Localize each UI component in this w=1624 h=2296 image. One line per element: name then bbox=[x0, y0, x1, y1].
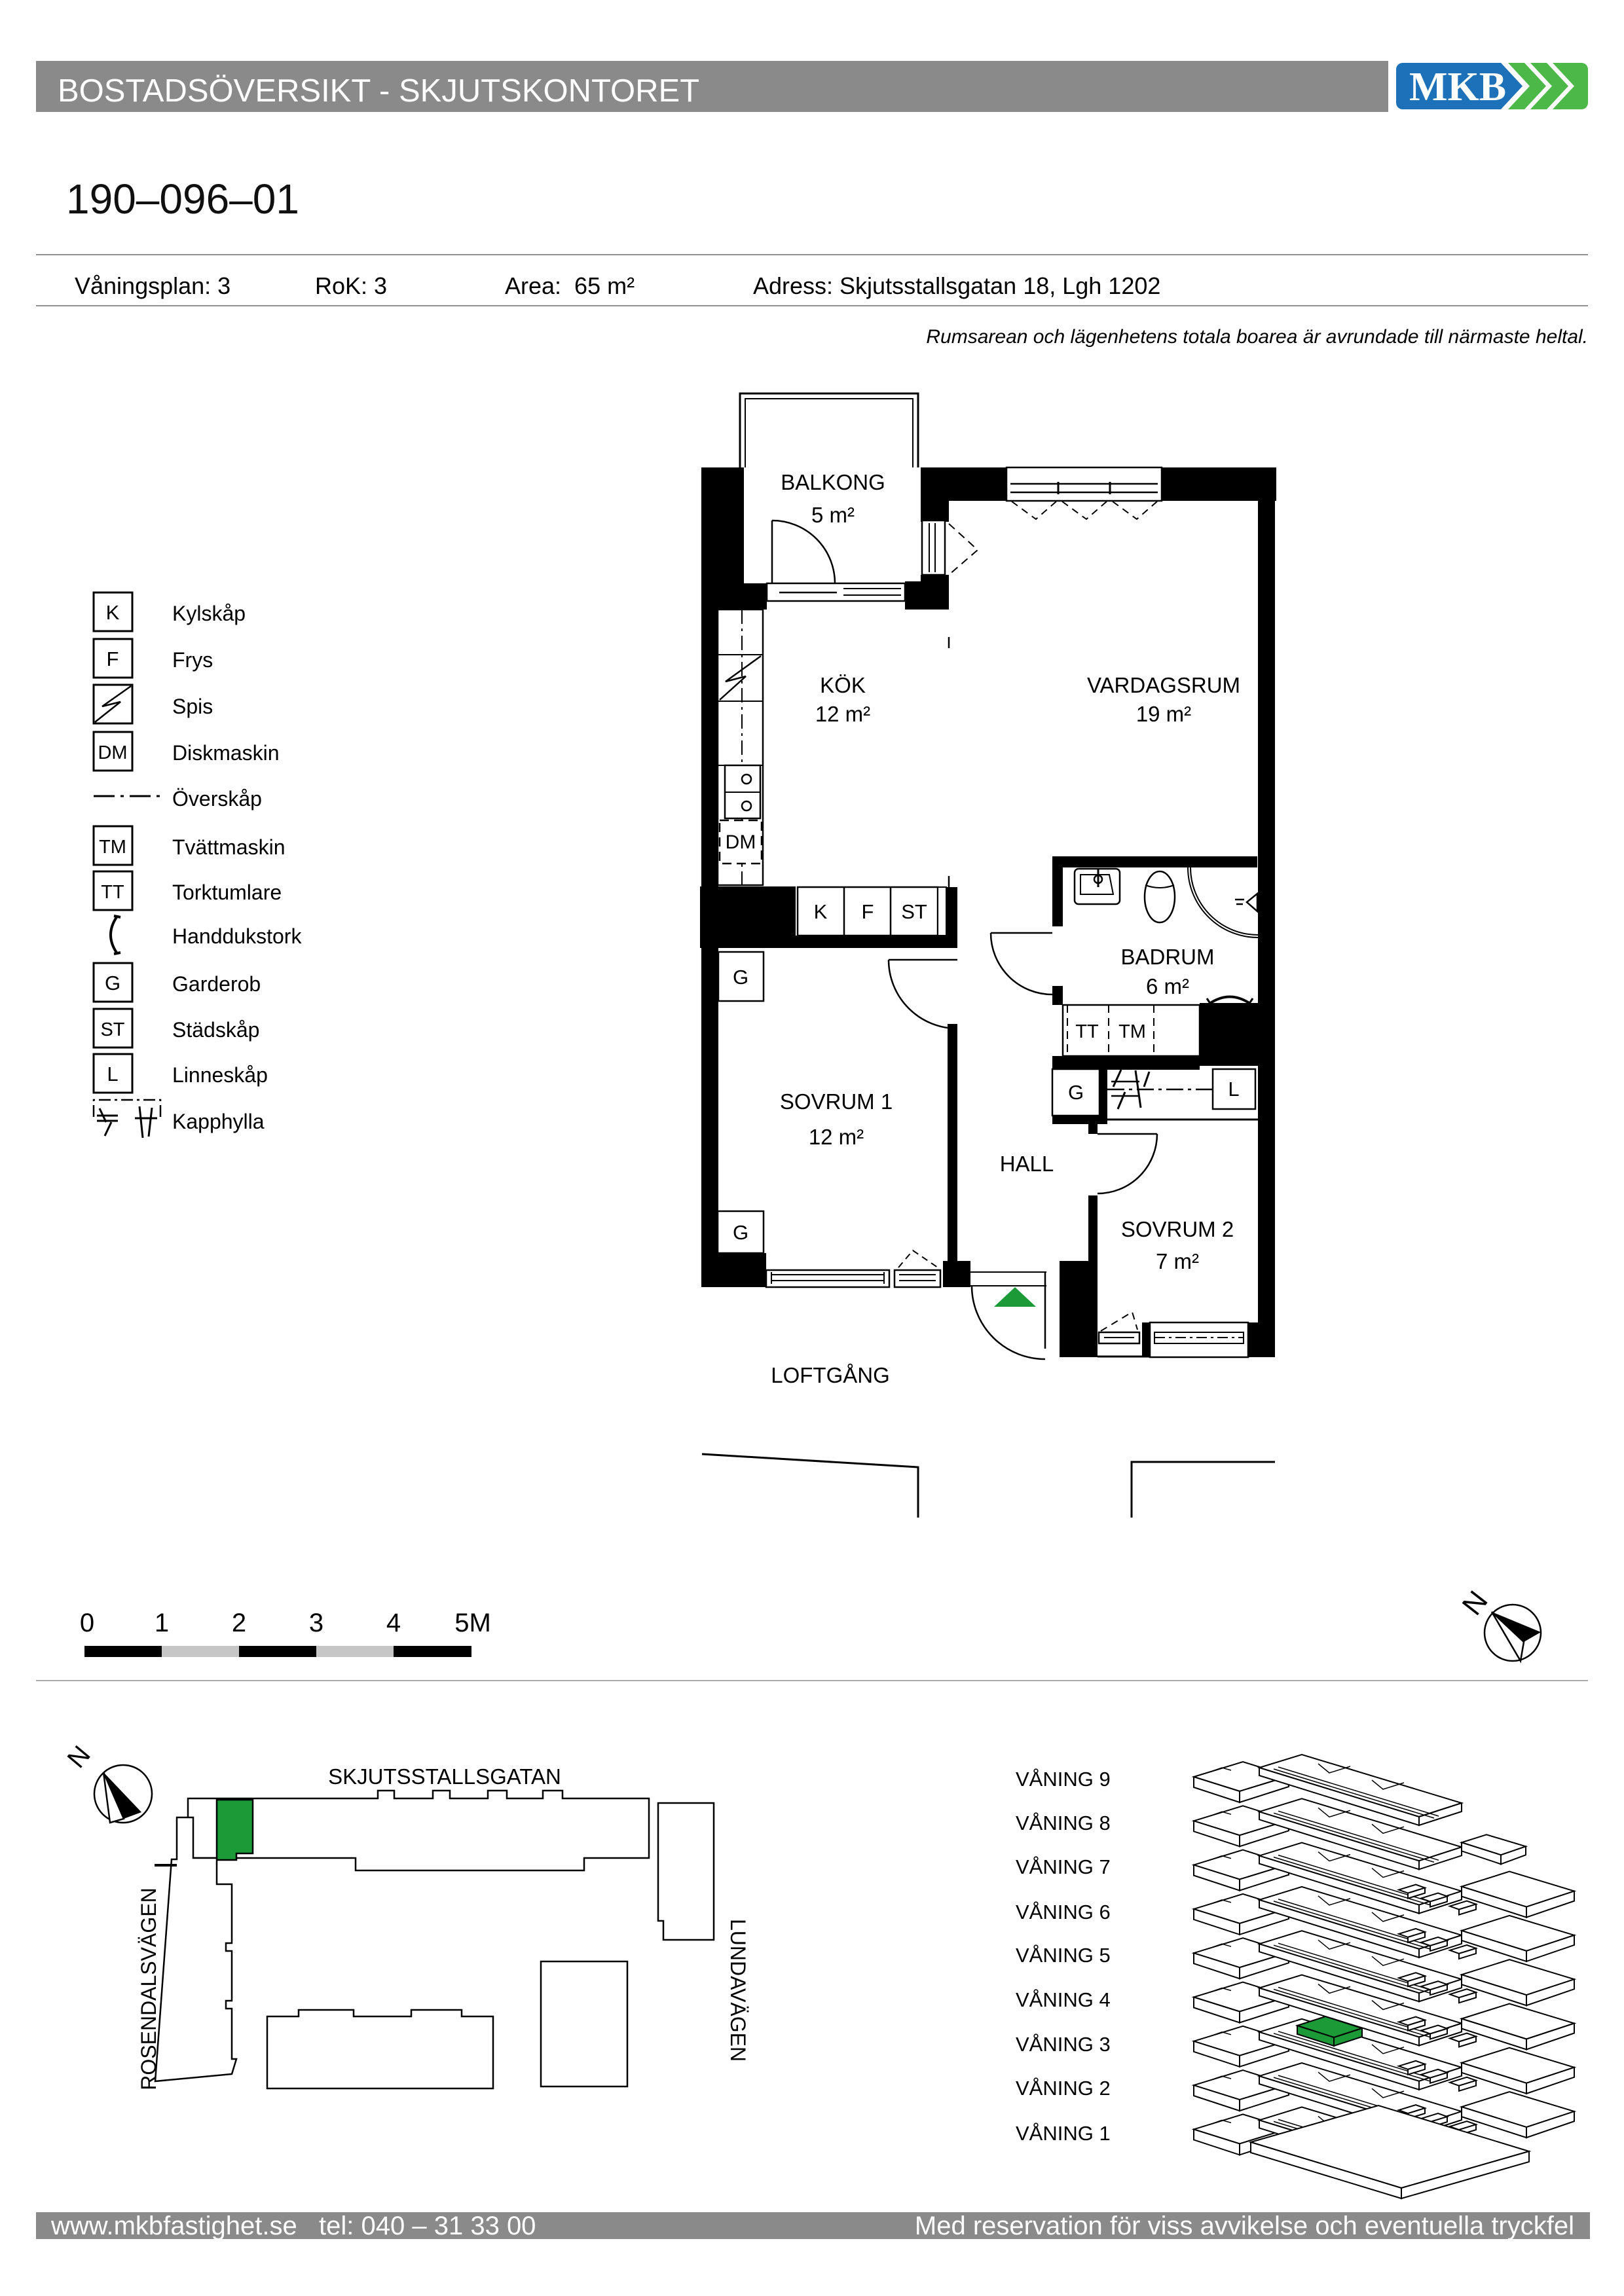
svg-text:Kylskåp: Kylskåp bbox=[172, 602, 246, 625]
svg-text:TT: TT bbox=[1075, 1021, 1099, 1042]
svg-text:Rumsarean och lägenhetens tota: Rumsarean och lägenhetens totala boarea … bbox=[926, 326, 1588, 348]
svg-text:Handdukstork: Handdukstork bbox=[172, 924, 302, 948]
svg-text:VÅNING 5: VÅNING 5 bbox=[1016, 1944, 1111, 1967]
svg-text:12 m²: 12 m² bbox=[809, 1125, 864, 1149]
svg-text:ST: ST bbox=[901, 900, 927, 923]
svg-text:LOFTGÅNG: LOFTGÅNG bbox=[771, 1363, 890, 1387]
svg-text:Area: 65 m²: Area: 65 m² bbox=[505, 272, 635, 299]
svg-text:Adress: Skjutsstallsgatan 18,: Adress: Skjutsstallsgatan 18, Lgh 1202 bbox=[753, 272, 1160, 299]
svg-text:190–096–01: 190–096–01 bbox=[66, 175, 299, 223]
svg-text:Våningsplan: 3: Våningsplan: 3 bbox=[75, 272, 231, 299]
svg-text:Tvättmaskin: Tvättmaskin bbox=[172, 835, 285, 859]
svg-text:SOVRUM 2: SOVRUM 2 bbox=[1121, 1217, 1234, 1241]
svg-text:3: 3 bbox=[309, 1609, 323, 1637]
svg-text:LUNDAVÄGEN: LUNDAVÄGEN bbox=[726, 1919, 750, 2062]
svg-text:TM: TM bbox=[99, 837, 126, 858]
svg-text:KÖK: KÖK bbox=[820, 673, 866, 697]
svg-text:L: L bbox=[1228, 1078, 1239, 1101]
svg-text:Linneskåp: Linneskåp bbox=[172, 1063, 268, 1087]
svg-text:ROSENDALSVÄGEN: ROSENDALSVÄGEN bbox=[137, 1887, 160, 2090]
svg-text:MKB: MKB bbox=[1409, 65, 1506, 109]
svg-text:Med reservation för viss avvik: Med reservation för viss avvikelse och e… bbox=[915, 2212, 1574, 2240]
svg-text:4: 4 bbox=[386, 1609, 401, 1637]
svg-text:K: K bbox=[814, 900, 828, 923]
svg-text:RoK: 3: RoK: 3 bbox=[315, 272, 387, 299]
svg-text:VÅNING 8: VÅNING 8 bbox=[1016, 1812, 1111, 1834]
svg-text:Spis: Spis bbox=[172, 695, 213, 718]
svg-text:VÅNING 6: VÅNING 6 bbox=[1016, 1901, 1111, 1923]
svg-text:TT: TT bbox=[101, 882, 124, 903]
svg-text:VÅNING 2: VÅNING 2 bbox=[1016, 2077, 1111, 2100]
svg-text:L: L bbox=[107, 1063, 118, 1085]
svg-text:0: 0 bbox=[80, 1609, 94, 1637]
svg-text:6 m²: 6 m² bbox=[1146, 974, 1189, 998]
svg-text:SKJUTSSTALLSGATAN: SKJUTSSTALLSGATAN bbox=[328, 1764, 561, 1789]
svg-text:VÅNING 1: VÅNING 1 bbox=[1016, 2122, 1111, 2145]
svg-text:www.mkbfastighet.se tel: 040: www.mkbfastighet.se tel: 040 – 31 33 00 bbox=[50, 2212, 536, 2240]
svg-text:K: K bbox=[106, 601, 120, 624]
svg-text:VÅNING 4: VÅNING 4 bbox=[1016, 1988, 1111, 2011]
svg-text:G: G bbox=[733, 1221, 748, 1244]
svg-text:SOVRUM 1: SOVRUM 1 bbox=[780, 1089, 893, 1114]
svg-text:Kapphylla: Kapphylla bbox=[172, 1110, 265, 1133]
svg-text:VÅNING 3: VÅNING 3 bbox=[1016, 2033, 1111, 2056]
svg-text:19 m²: 19 m² bbox=[1136, 702, 1191, 726]
svg-text:DM: DM bbox=[98, 742, 127, 763]
svg-text:F: F bbox=[107, 647, 119, 670]
svg-text:VÅNING 9: VÅNING 9 bbox=[1016, 1768, 1111, 1791]
svg-text:F: F bbox=[862, 900, 874, 923]
svg-text:Diskmaskin: Diskmaskin bbox=[172, 741, 280, 765]
svg-text:BALKONG: BALKONG bbox=[781, 470, 885, 494]
svg-text:12 m²: 12 m² bbox=[815, 702, 870, 726]
svg-text:HALL: HALL bbox=[1000, 1152, 1054, 1176]
svg-text:ST: ST bbox=[100, 1019, 124, 1040]
svg-text:G: G bbox=[105, 972, 120, 994]
svg-text:DM: DM bbox=[726, 831, 756, 853]
svg-text:5 m²: 5 m² bbox=[811, 503, 855, 527]
svg-text:Överskåp: Överskåp bbox=[172, 787, 262, 811]
svg-text:Torktumlare: Torktumlare bbox=[172, 881, 282, 904]
svg-text:Städskåp: Städskåp bbox=[172, 1018, 259, 1042]
svg-text:2: 2 bbox=[232, 1609, 246, 1637]
svg-text:7 m²: 7 m² bbox=[1156, 1249, 1199, 1273]
svg-text:TM: TM bbox=[1118, 1021, 1146, 1042]
svg-text:1: 1 bbox=[155, 1609, 169, 1637]
svg-text:G: G bbox=[733, 966, 748, 989]
svg-text:G: G bbox=[1068, 1081, 1084, 1104]
svg-text:BADRUM: BADRUM bbox=[1120, 945, 1214, 969]
svg-text:Garderob: Garderob bbox=[172, 972, 261, 996]
svg-text:BOSTADSÖVERSIKT - SKJUTSKONTOR: BOSTADSÖVERSIKT - SKJUTSKONTORET bbox=[58, 73, 699, 109]
svg-text:N: N bbox=[1456, 1585, 1494, 1621]
svg-text:VÅNING 7: VÅNING 7 bbox=[1016, 1855, 1111, 1878]
svg-text:VARDAGSRUM: VARDAGSRUM bbox=[1087, 673, 1240, 697]
svg-text:5M: 5M bbox=[454, 1609, 491, 1637]
svg-text:N: N bbox=[62, 1740, 96, 1773]
svg-text:Frys: Frys bbox=[172, 648, 213, 672]
